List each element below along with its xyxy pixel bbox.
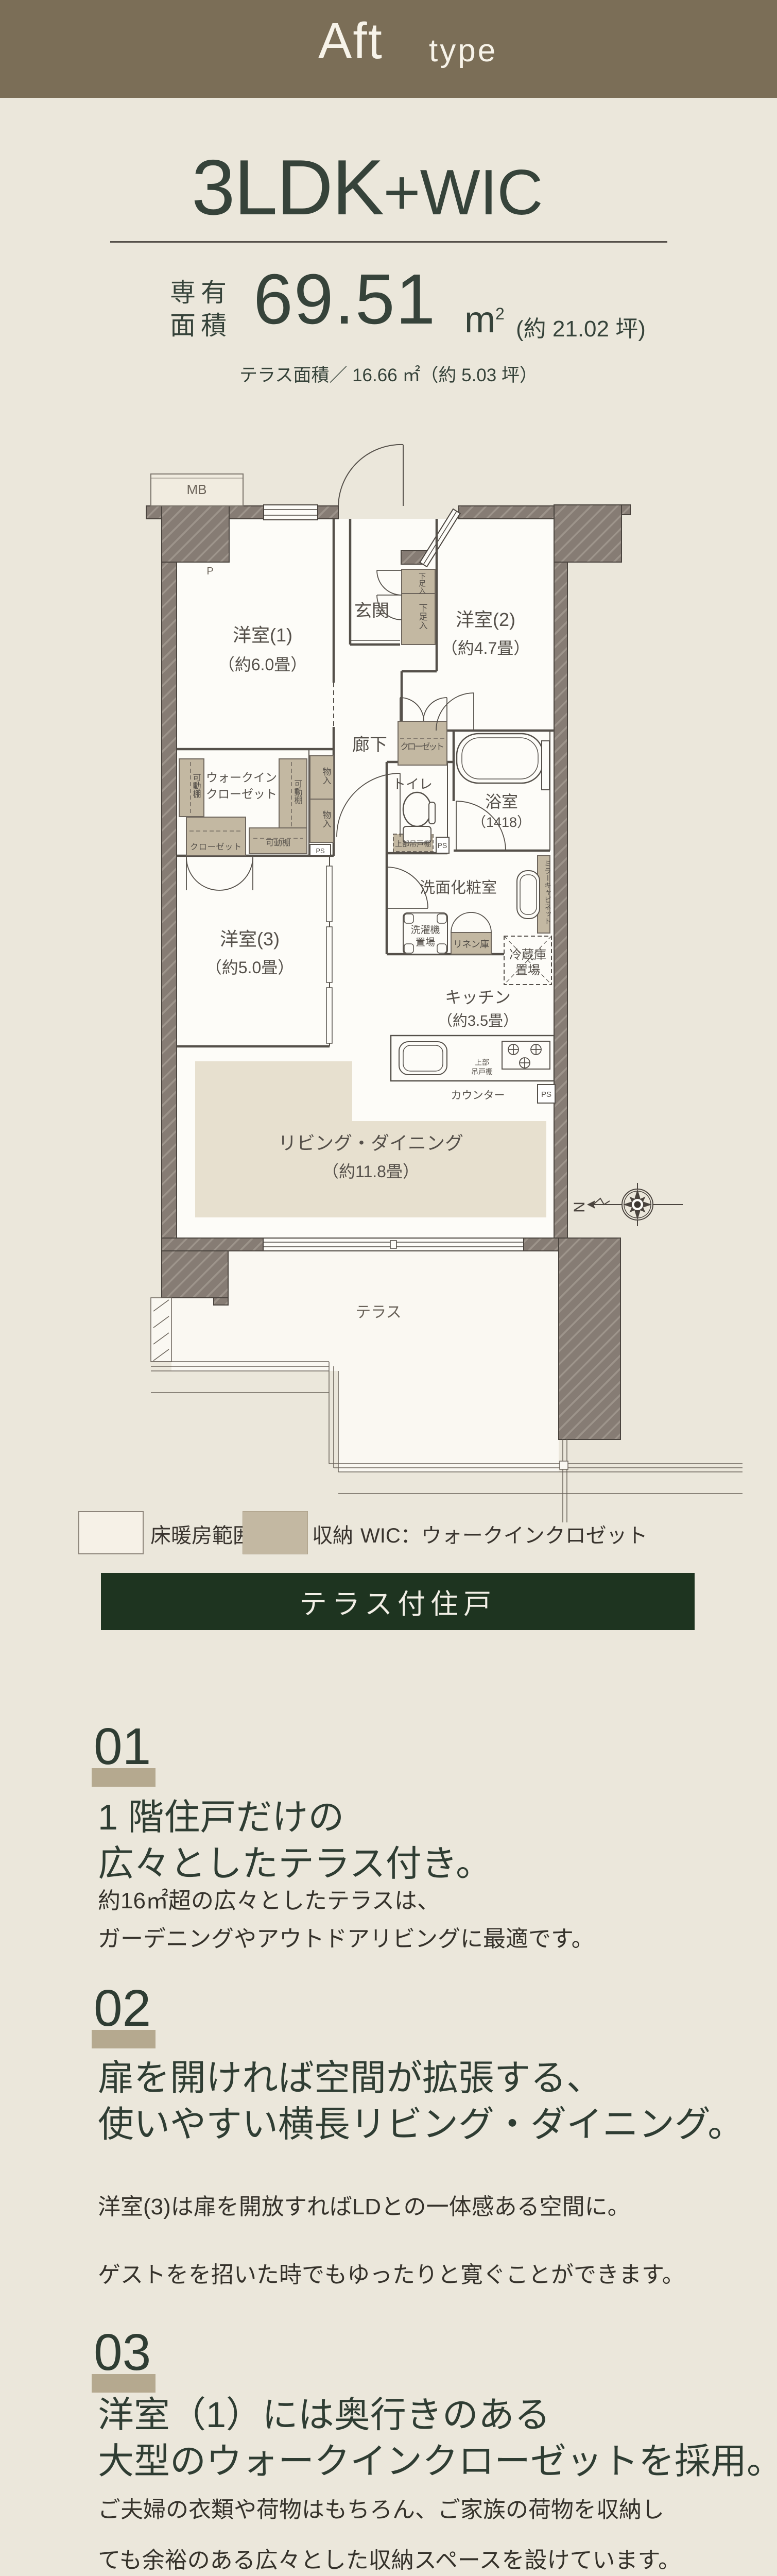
svg-text:冷蔵庫: 冷蔵庫: [509, 948, 546, 962]
section-3-number: 03: [94, 2327, 151, 2378]
svg-text:カウンター: カウンター: [451, 1090, 505, 1101]
svg-text:リネン庫: リネン庫: [453, 939, 489, 950]
svg-text:洗濯機: 洗濯機: [410, 924, 440, 936]
section-1-body-line2: ガーデニングやアウトドアリビングに最適です。: [98, 1928, 594, 1951]
legend-label-floor-heating: 床暖房範囲: [150, 1519, 253, 1549]
legend-label-storage: 収納: [312, 1519, 353, 1549]
section-1-body-line1: 約16㎡超の広々としたテラスは、: [98, 1890, 440, 1912]
area-label-line1: 専有: [170, 276, 232, 309]
svg-text:洋室(2): 洋室(2): [456, 609, 515, 630]
entrance-door: [338, 445, 403, 506]
section-3-body-line1: ご夫婦の衣類や荷物はもちろん、ご家族の荷物を収納し: [98, 2499, 664, 2521]
area-unit-m: m: [464, 299, 495, 341]
floor-plan-svg: MB P: [144, 440, 752, 1528]
svg-text:下足入: 下足入: [418, 603, 428, 630]
svg-text:トイレ: トイレ: [392, 776, 433, 792]
svg-text:可動棚: 可動棚: [192, 773, 201, 799]
plan-type-name: Aft: [318, 15, 383, 66]
area-value: 69.51: [253, 264, 436, 335]
terrace-area-note: テラス面積／ 16.66 ㎡（約 5.03 坪）: [0, 361, 777, 387]
area-tsubo: (約 21.02 坪): [516, 310, 646, 343]
floor-plan: MB P: [144, 440, 752, 1528]
svg-text:テラス: テラス: [355, 1304, 401, 1321]
svg-text:（約3.5畳）: （約3.5畳）: [438, 1012, 518, 1029]
svg-text:吊戸棚: 吊戸棚: [471, 1067, 493, 1076]
bath-niche: [542, 741, 549, 790]
layout-title: 3LDK+WIC: [192, 148, 543, 227]
svg-text:浴室: 浴室: [485, 792, 518, 811]
svg-text:（約5.0畳）: （約5.0畳）: [205, 958, 295, 977]
window-living: [263, 1238, 524, 1251]
terrace-banner: テラス付住戸: [101, 1573, 695, 1630]
page: Aft type 3LDK+WIC 専有 面積 69.51 m2 (約 21.0…: [0, 0, 777, 2576]
svg-text:洗面化粧室: 洗面化粧室: [420, 879, 497, 896]
svg-text:PS: PS: [316, 847, 325, 855]
sliding-doors-room3: [326, 866, 332, 1043]
svg-text:洋室(3): 洋室(3): [220, 928, 280, 950]
section-2-body-line1: 洋室(3)は扉を開放すればLDとの一体感ある空間に。: [98, 2196, 630, 2218]
legend-swatch-floor-heating: [78, 1511, 144, 1554]
legend-label-wic: WIC：ウォークインクロゼット: [360, 1519, 648, 1549]
sink-icon: [517, 871, 540, 919]
title-divider: [110, 241, 667, 243]
section-2-number: 02: [94, 1982, 151, 2034]
svg-text:クローゼット: クローゼット: [400, 742, 444, 752]
svg-text:可動棚: 可動棚: [293, 779, 303, 805]
svg-text:玄関: 玄関: [354, 601, 389, 621]
svg-text:（1418）: （1418）: [472, 815, 531, 830]
area-label-line2: 面積: [170, 309, 232, 342]
svg-text:クローゼット: クローゼット: [190, 842, 241, 852]
svg-text:ウォークイン: ウォークイン: [206, 771, 277, 784]
svg-text:PS: PS: [541, 1090, 551, 1099]
svg-text:PS: PS: [438, 841, 447, 850]
svg-text:（約11.8畳）: （約11.8畳）: [322, 1162, 419, 1181]
section-1-number: 01: [94, 1721, 151, 1772]
svg-text:下足入: 下足入: [418, 572, 426, 594]
bathtub-icon: [457, 734, 543, 783]
header-bar: Aft type: [0, 0, 777, 98]
svg-text:廊下: 廊下: [352, 735, 387, 755]
p-label: P: [206, 566, 213, 577]
area-label: 専有 面積: [170, 276, 232, 342]
legend-swatch-storage: [243, 1511, 308, 1554]
section-1-heading-line1: 1 階住戸だけの: [98, 1799, 344, 1835]
north-label: N: [571, 1201, 588, 1213]
area-unit-sup: 2: [495, 304, 505, 323]
area-unit: m2: [464, 299, 505, 341]
svg-text:洋室(1): 洋室(1): [233, 624, 292, 646]
layout-title-main: 3LDK: [192, 144, 383, 231]
section-1-heading-line2: 広々としたテラス付き。: [98, 1845, 492, 1882]
section-3-heading-line1: 洋室（1）には奥行きのある: [98, 2397, 550, 2433]
section-2-heading-line2: 使いやすい横長リビング・ダイニング。: [98, 2106, 744, 2142]
svg-text:（約6.0畳）: （約6.0畳）: [218, 655, 307, 674]
svg-text:置場: 置場: [515, 963, 540, 977]
section-2-heading-line1: 扉を開ければ空間が拡張する、: [98, 2060, 602, 2096]
section-3-heading-line2: 大型のウォークインクローゼットを採用。: [98, 2443, 777, 2479]
svg-text:クローゼット: クローゼット: [206, 787, 277, 801]
section-3-body-line2: ても余裕のある広々とした収納スペースを設けています。: [98, 2549, 681, 2572]
svg-text:（約4.7畳）: （約4.7畳）: [441, 639, 530, 657]
svg-text:物入: 物入: [321, 810, 332, 828]
mb-label: MB: [187, 482, 207, 497]
layout-title-sub: +WIC: [383, 157, 542, 228]
svg-text:キッチン: キッチン: [445, 988, 511, 1007]
svg-text:ミラーキャビネット: ミラーキャビネット: [544, 860, 552, 925]
compass-icon: N: [571, 1183, 683, 1226]
terrace-banner-label: テラス付住戸: [299, 1581, 496, 1622]
window-room1: [264, 505, 318, 520]
section-2-body-line2: ゲストをを招いた時でもゆったりと寛ぐことができます。: [98, 2264, 685, 2286]
svg-text:物入: 物入: [321, 767, 332, 785]
svg-text:可動棚: 可動棚: [266, 838, 290, 848]
svg-text:リビング・ダイニング: リビング・ダイニング: [278, 1132, 463, 1154]
plan-type-suffix: type: [429, 35, 497, 67]
svg-text:上部吊戸棚: 上部吊戸棚: [395, 840, 431, 848]
svg-text:上部: 上部: [475, 1058, 489, 1066]
svg-text:置場: 置場: [416, 937, 435, 948]
